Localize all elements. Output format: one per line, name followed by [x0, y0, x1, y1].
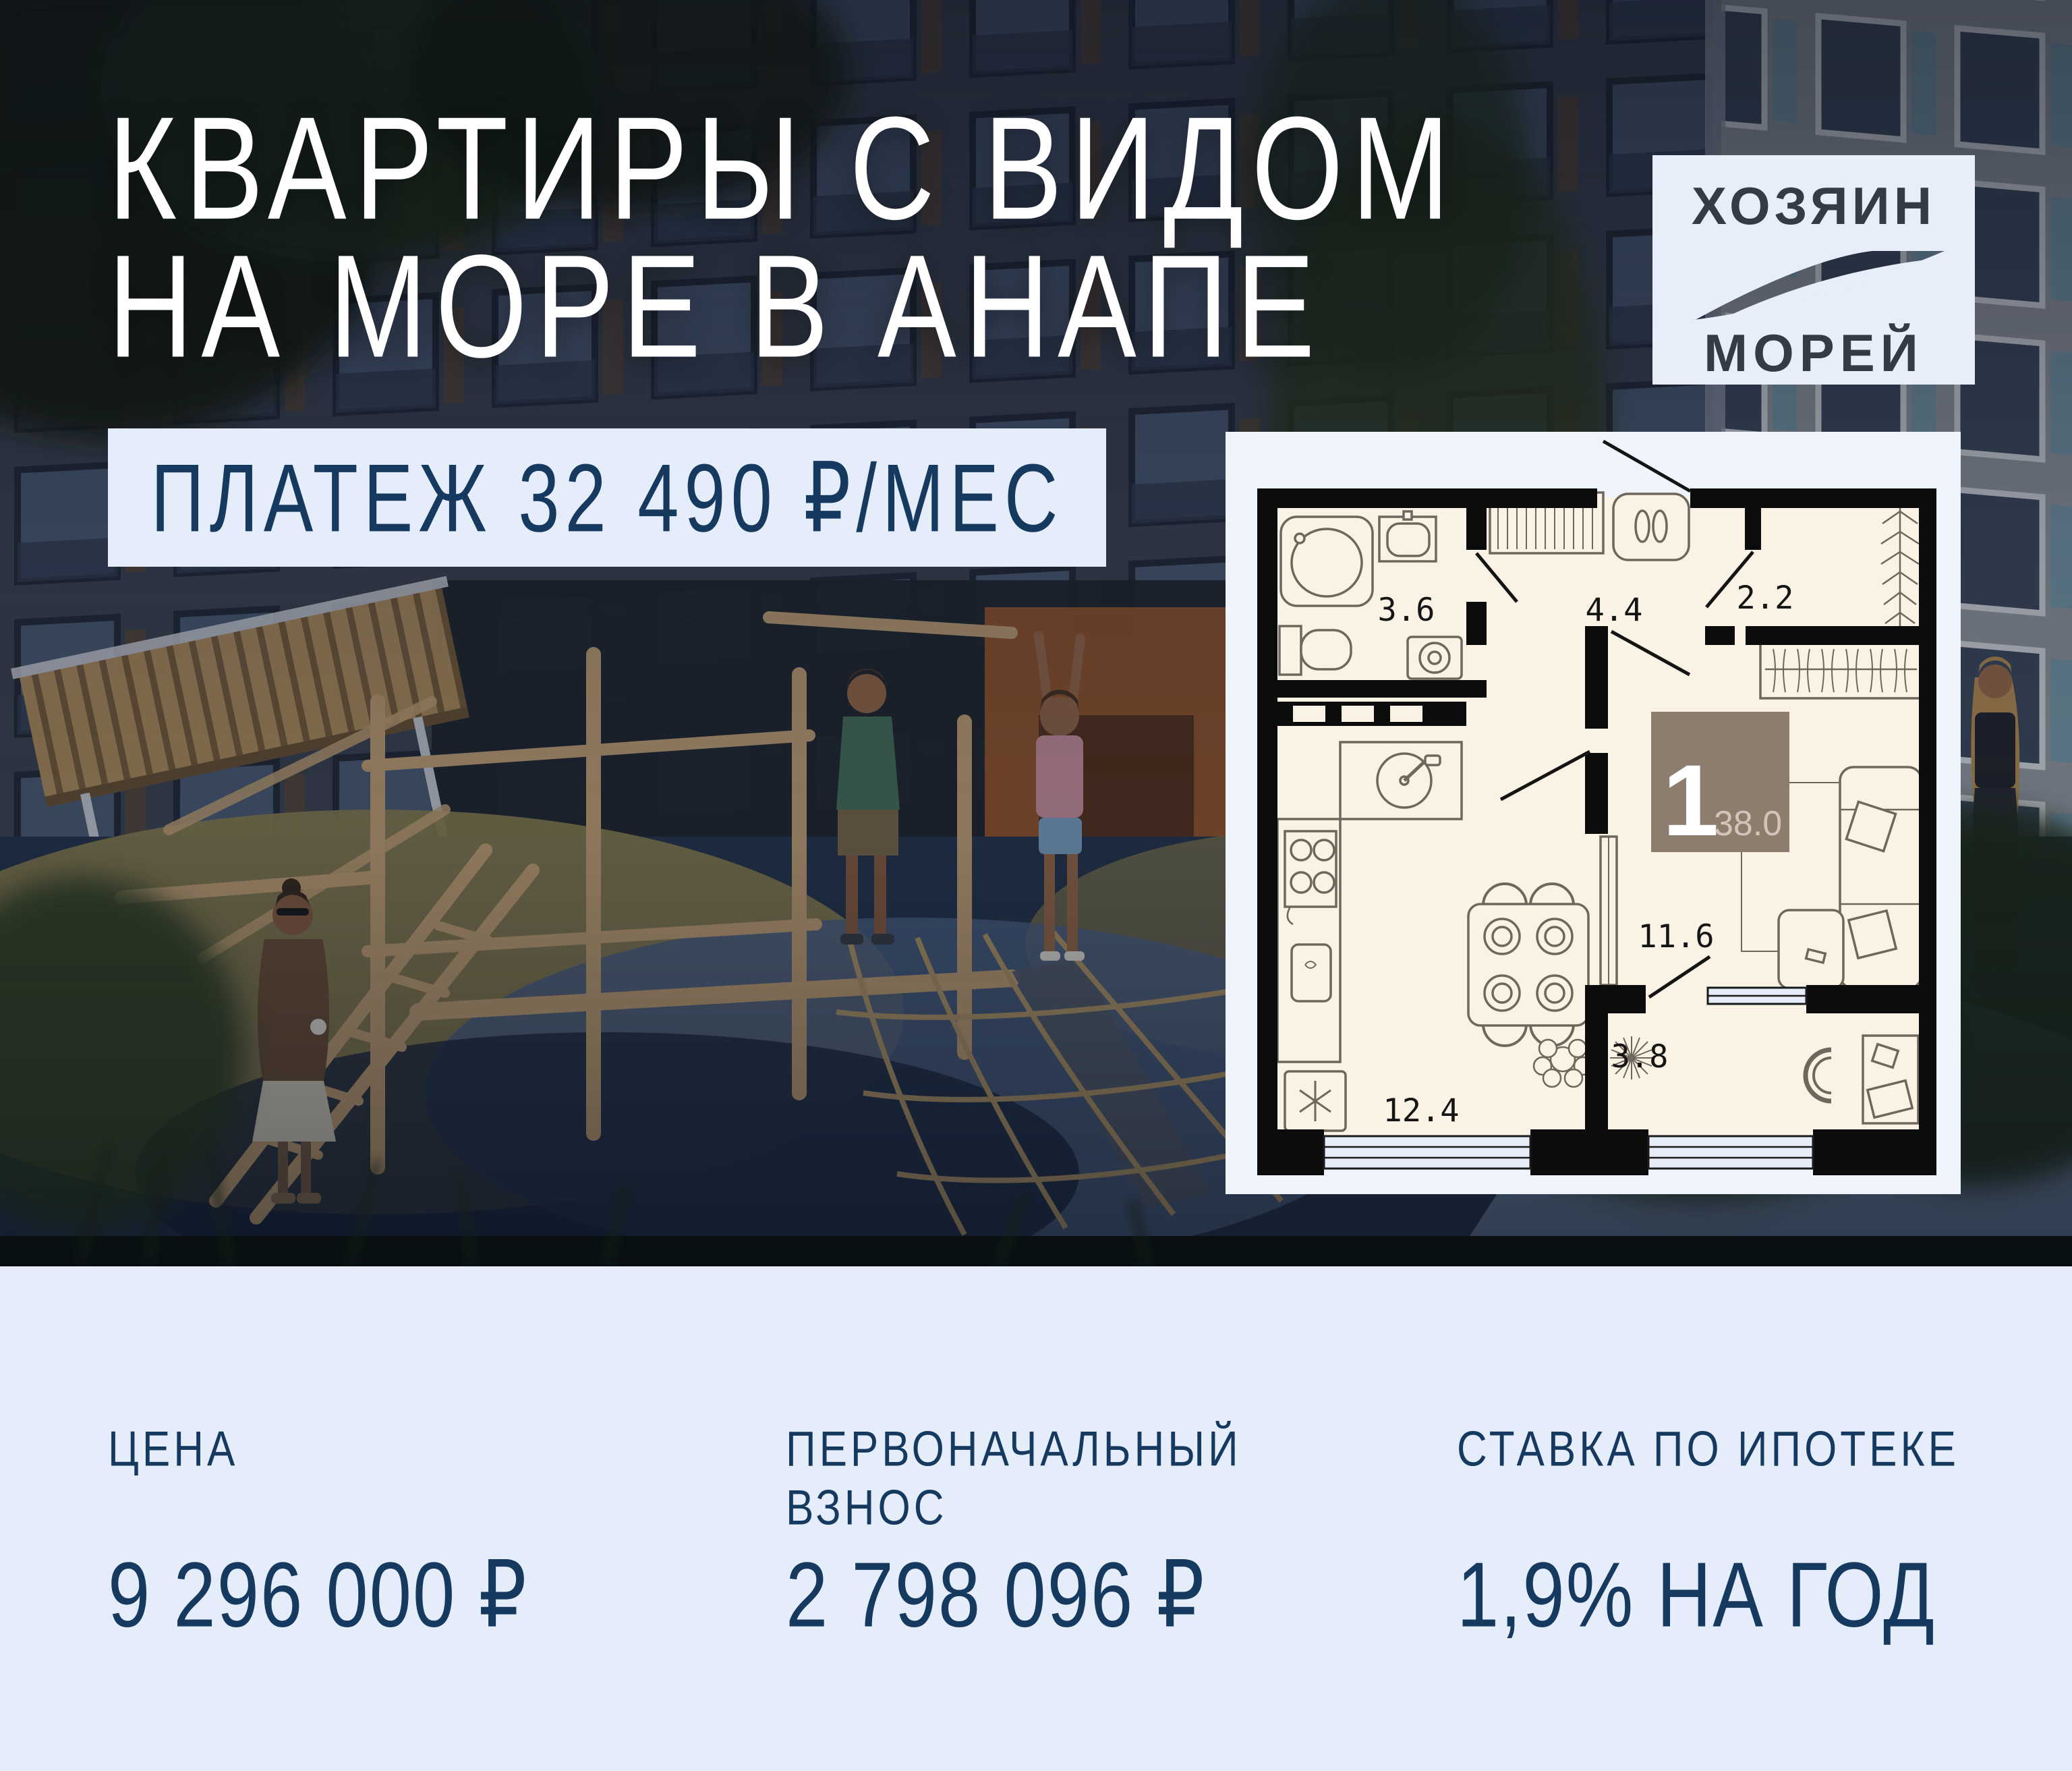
- headline-line2: НА МОРЕ В АНАПЕ: [108, 225, 1323, 389]
- plan-area-badge: 1 38.0: [1651, 712, 1789, 857]
- headline: КВАРТИРЫ С ВИДОМ НА МОРЕ В АНАПЕ: [108, 100, 1458, 376]
- room-label-living: 11.6: [1638, 918, 1714, 955]
- developer-logo: ХОЗЯИН МОРЕЙ: [1650, 154, 1978, 386]
- floor-plan: 1 38.0 3.6 4.4 2.2 11.6 3.8 12.4: [1226, 432, 1961, 1194]
- room-label-kitchen: 12.4: [1383, 1092, 1459, 1129]
- mortgage-rate-value: 1,9% НА ГОД: [1457, 1542, 1936, 1648]
- logo-line1: ХОЗЯИН: [1692, 176, 1936, 235]
- real-estate-ad-banner: 1: [0, 0, 2072, 1771]
- logo-line2: МОРЕЙ: [1704, 323, 1924, 383]
- payment-badge-text: ПЛАТЕЖ 32 490 ₽/МЕС: [151, 441, 1064, 553]
- room-label-hallway: 4.4: [1586, 592, 1643, 629]
- plan-total-area: 38.0: [1714, 804, 1782, 843]
- stats-panel: ЦЕНА 9 296 000 ₽ ПЕРВОНАЧАЛЬНЫЙ ВЗНОС 2 …: [0, 1266, 2072, 1771]
- down-payment-label: ПЕРВОНАЧАЛЬНЫЙ ВЗНОС: [786, 1420, 1366, 1538]
- room-label-loggia: 3.8: [1611, 1038, 1669, 1075]
- hero-photo: 1: [0, 0, 2072, 1266]
- payment-badge: ПЛАТЕЖ 32 490 ₽/МЕС: [108, 428, 1106, 567]
- room-label-bathroom: 3.6: [1378, 592, 1435, 629]
- room-label-wardrobe: 2.2: [1737, 580, 1794, 617]
- price-value: 9 296 000 ₽: [108, 1542, 528, 1649]
- down-payment-value: 2 798 096 ₽: [786, 1542, 1206, 1649]
- mortgage-rate-label: СТАВКА ПО ИПОТЕКЕ: [1457, 1420, 1959, 1479]
- price-label: ЦЕНА: [108, 1420, 238, 1479]
- plan-rooms-count: 1: [1663, 743, 1719, 857]
